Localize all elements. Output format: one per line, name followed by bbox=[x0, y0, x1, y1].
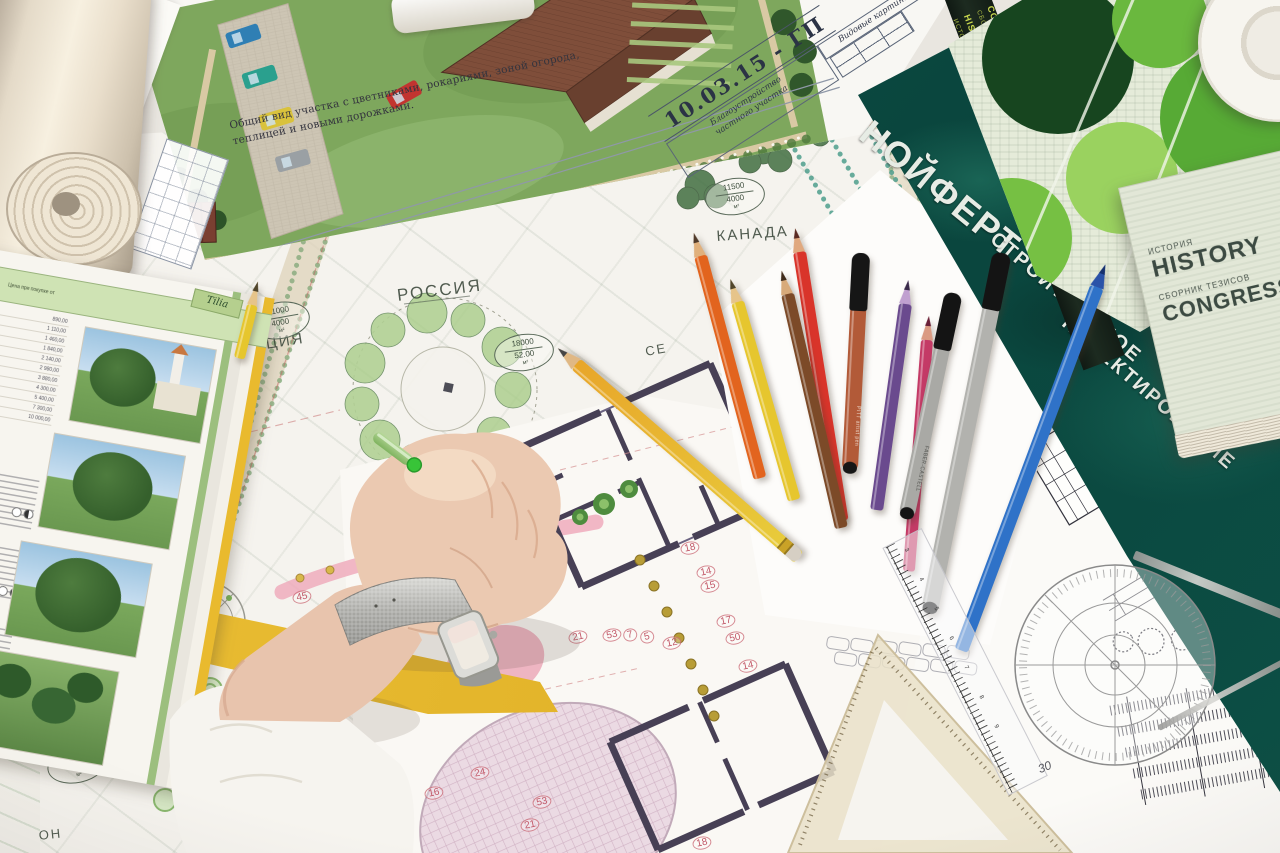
photo-architect-desk: РОССИЯКАНАДАНЦИЯСЕОН 110004000м²11500400… bbox=[0, 0, 1280, 853]
hand-with-pen bbox=[150, 390, 580, 853]
